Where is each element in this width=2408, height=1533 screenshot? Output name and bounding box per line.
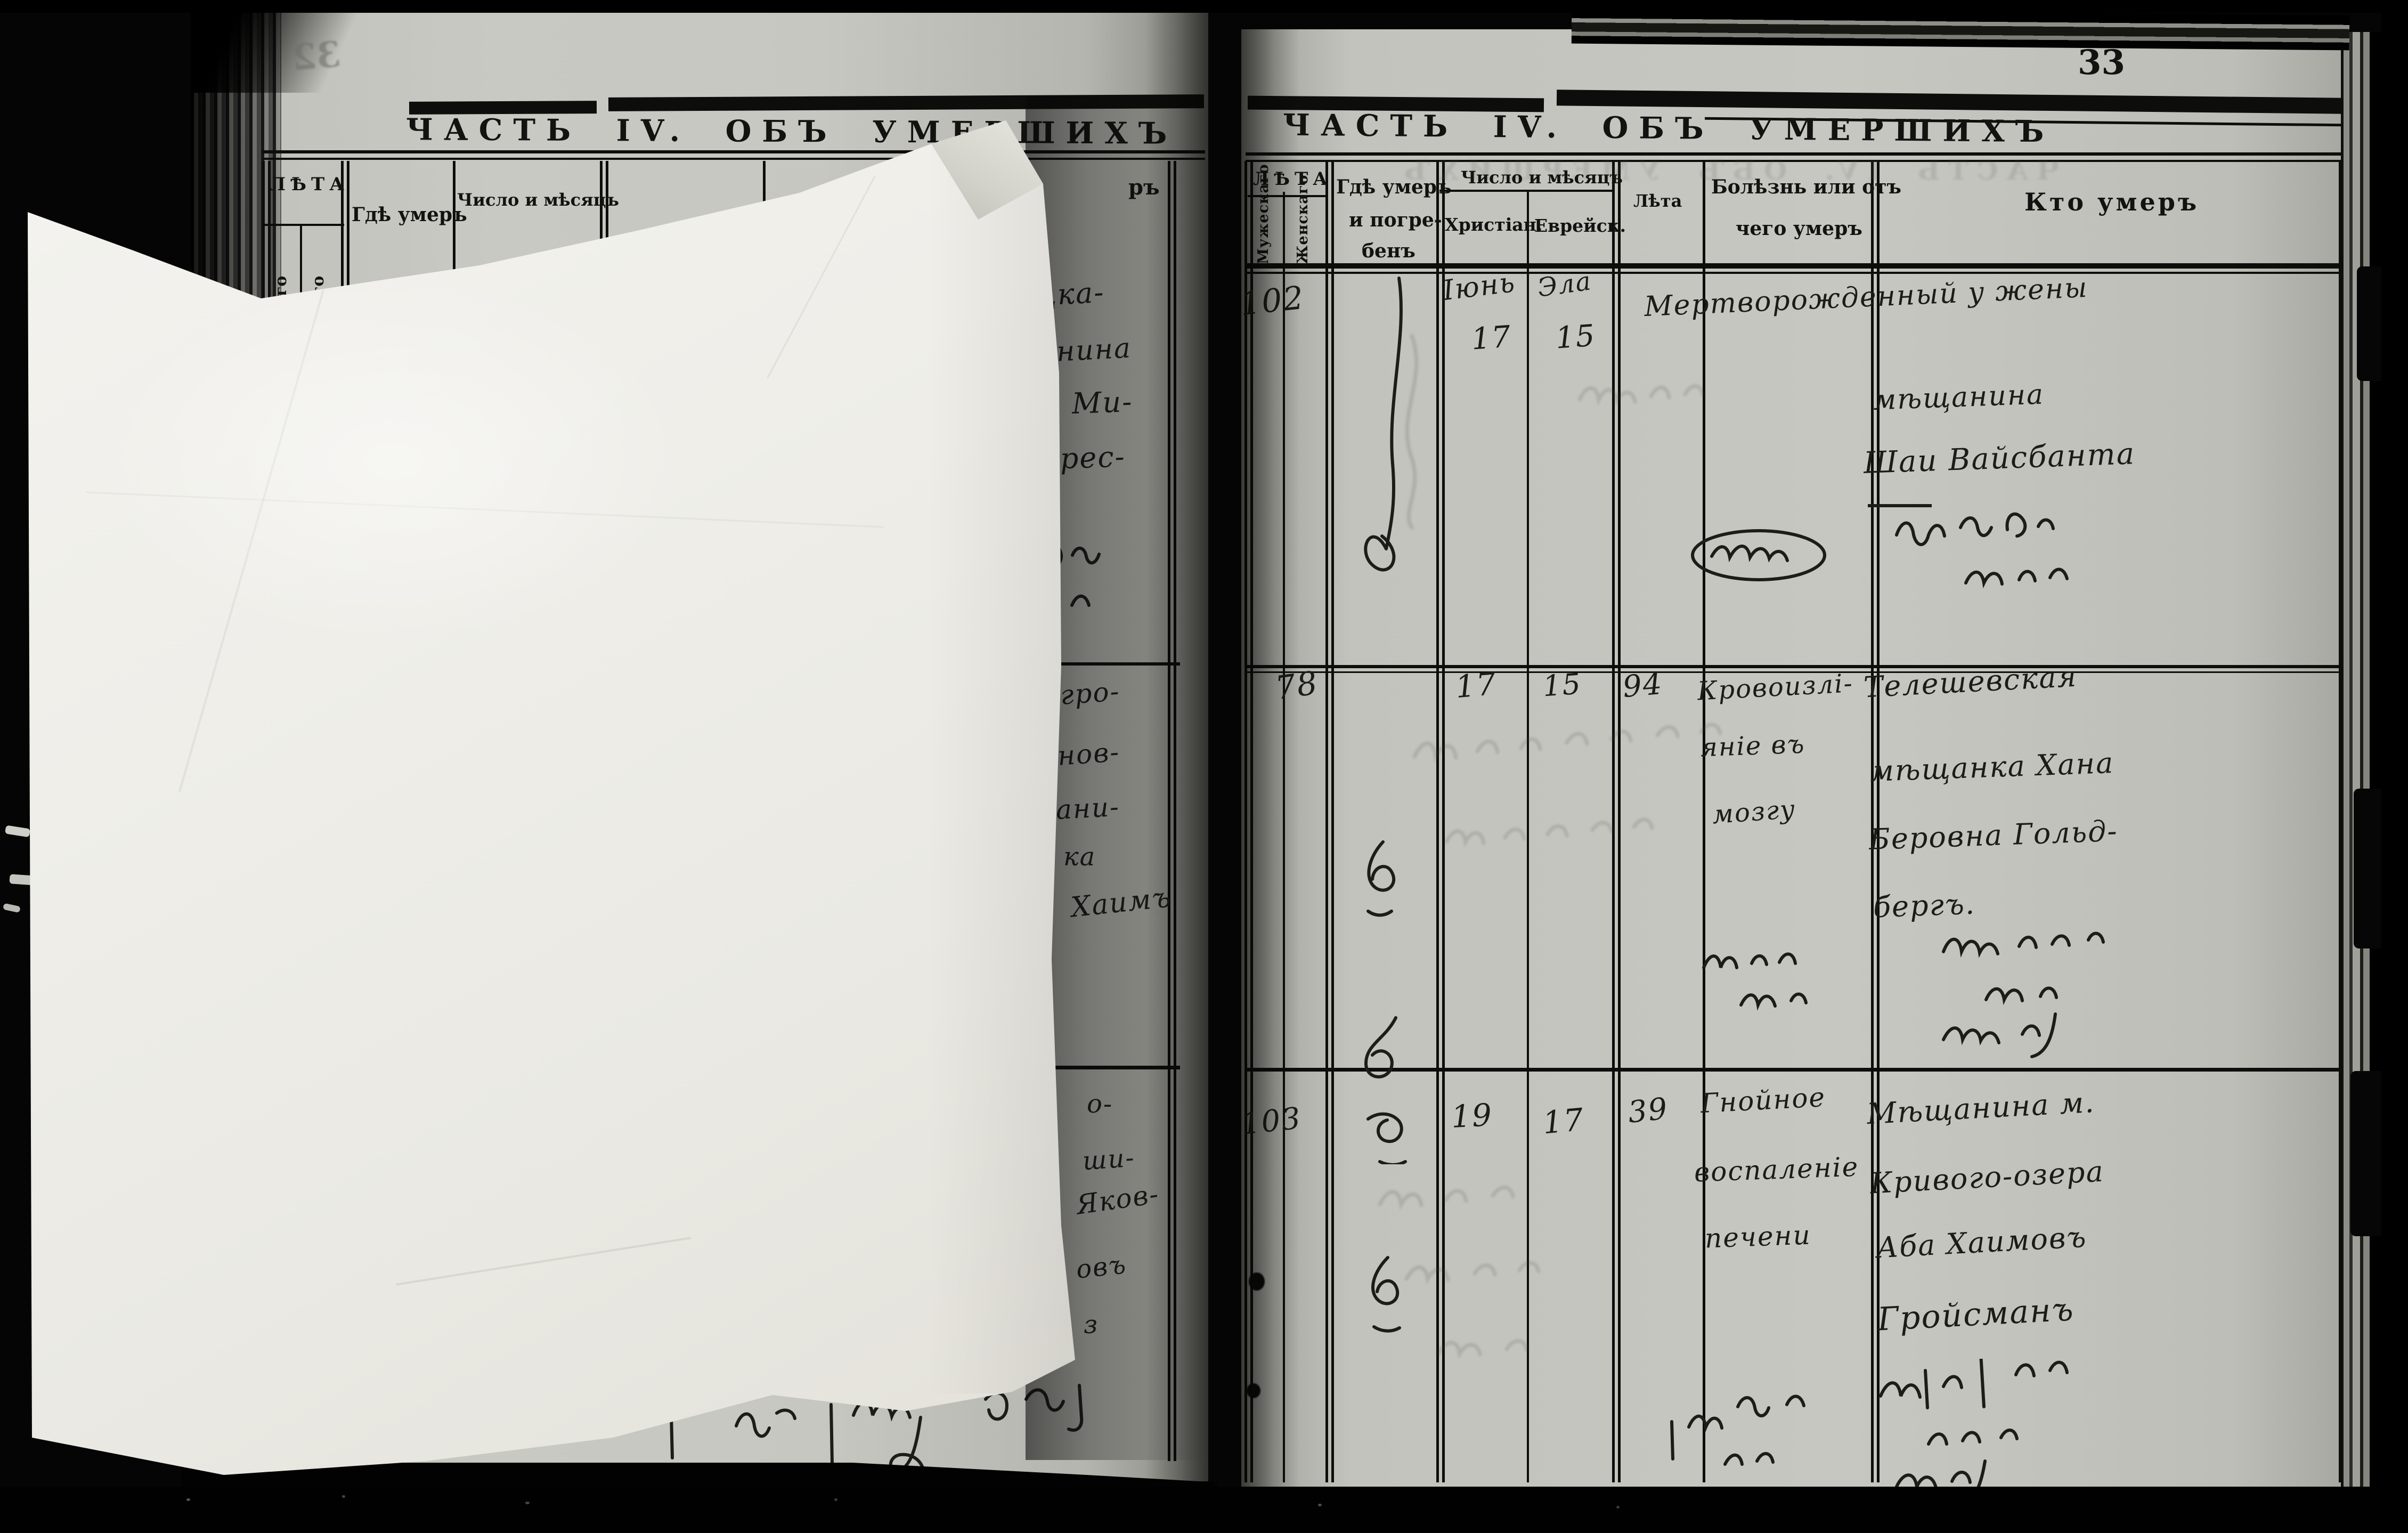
age-value: 94 [1621,667,1664,704]
record-number: 103 [1240,1101,1303,1141]
column-rule [1871,161,1880,1482]
stacked-page-edges-top [1572,9,2350,51]
death-date-christian-day: 19 [1450,1097,1493,1135]
page-number: 33 [2078,43,2125,83]
title-underline [262,158,1205,160]
column-rule [1325,161,1334,1482]
loose-paper-sheet [21,51,1081,1479]
record-fragment: гро- [1059,676,1121,711]
record-number: 102 [1239,279,1306,323]
col-header-cause: чего умеръ [1736,217,1862,240]
dust-speck [834,1498,837,1501]
col-header-where: Гдѣ умеръ [1336,176,1452,198]
death-date-jewish-day: 17 [1541,1101,1585,1141]
col-header-age: Лѣта [1633,191,1682,211]
death-date-jewish-day: 15 [1542,667,1583,703]
ink-blot [1249,1272,1265,1291]
cause-of-death-line: воспаленіе [1694,1151,1859,1188]
record-number: 78 [1273,664,1321,708]
bleedthrough-mark [1364,1162,1662,1385]
archival-book-photo: 32 ЧАСТЬ IV. ОБЪ УМЕРШИХЪ ЛѢТА Гдѣ умеръ… [0,0,2408,1533]
ink-blot [1247,1383,1260,1398]
hebrew-script-line [1880,920,2183,1058]
title-underline [262,150,1205,153]
paper-sheen [101,274,687,647]
death-date-jewish-day: 15 [1555,318,1597,355]
cause-of-death-line: мозгу [1711,794,1797,830]
photo-top-border [0,0,2408,13]
record-fragment: ка [1063,842,1096,872]
col-subheader-christian: Христіан. [1445,214,1542,235]
record-fragment: о- [1087,1089,1113,1119]
hebrew-script-circled [1686,522,1833,589]
row-divider [1042,1066,1180,1069]
record-fragment: з [1084,1310,1099,1340]
col-subheader-male: Мужескаго [1255,201,1272,264]
left-page-title: ЧАСТЬ IV. ОБЪ УМЕРШИХЪ [406,112,1178,151]
hebrew-script-line [1886,503,2126,610]
dust-speck [186,1498,190,1501]
bleedthrough-mark [1380,330,1449,533]
record-fragment: овъ [1075,1250,1128,1285]
col-header-where: Гдѣ умеръ [352,204,467,226]
deceased-name-line: мѣщанина [1873,378,2045,416]
bleedthrough-mark [1406,719,1747,789]
deceased-name-line: бергъ. [1873,887,1976,924]
page-fore-edge [2341,32,2381,1496]
subheader-rule [262,224,344,226]
subheader-fragment: го [272,232,290,296]
record-fragment: ани- [1055,791,1121,825]
subheader-fragment: го [309,232,328,296]
col-subheader-female: Женскаго [1295,201,1311,264]
subcolumn-rule [300,226,302,301]
photo-right-border [2381,0,2408,1533]
bleedthrough-mark [1572,362,1742,432]
film-scratch [5,825,30,838]
header-bottom-rule [1244,263,2342,269]
col-header-where: бенъ [1362,240,1415,262]
bleedthrough-mark [1438,810,1667,869]
col-header-cause: Болѣзнь или отъ [1711,176,1901,198]
col-header-where: и погре- [1349,209,1442,231]
col-header-leta: ЛѢТА [270,174,349,195]
dust-speck [525,1502,530,1504]
hebrew-script-line [1661,1379,1842,1483]
paper-crease [396,1237,691,1286]
dust-speck [1616,1506,1620,1508]
record-fragment: нов- [1056,736,1121,772]
burial-place-flourish [1356,836,1399,931]
record-fragment: ши- [1081,1143,1136,1177]
col-header-date: Число и мѣсяцъ [457,190,619,210]
subheader-rule [1439,190,1613,192]
right-page-title: ЧАСТЬ IV. ОБЪ УМЕРШИХЪ [1283,108,2055,150]
death-date-christian-day: 17 [1470,319,1513,356]
column-rule [1703,161,1705,1482]
bleed-page-number: 32 [290,33,343,79]
paper-crease [767,175,876,378]
photo-bottom-border [0,1487,2408,1533]
burial-place-flourish [1349,1012,1413,1164]
dust-speck [342,1495,345,1498]
table-right-rule [2339,161,2342,1482]
table-right-rule [1168,161,1176,1461]
dust-speck [1318,1504,1322,1506]
cause-of-death-line: печени [1704,1220,1812,1254]
col-header-date: Число и мѣсяцъ [1461,167,1623,188]
col-header-who-fragment: ръ [1128,175,1160,200]
cause-of-death-line: Гнойное [1700,1082,1827,1119]
subcolumn-rule [1283,192,1285,1482]
death-date-christian-day: 17 [1454,666,1498,705]
hebrew-script-line [1693,936,1837,1024]
row-divider [1042,662,1180,666]
col-subheader-jewish: Еврейск. [1534,215,1626,236]
row-divider [1244,665,2342,668]
record-fragment: Ми- [1071,385,1133,420]
age-value: 39 [1626,1091,1670,1130]
col-header-who: Кто умеръ [2024,188,2199,216]
film-scratch [3,903,21,913]
